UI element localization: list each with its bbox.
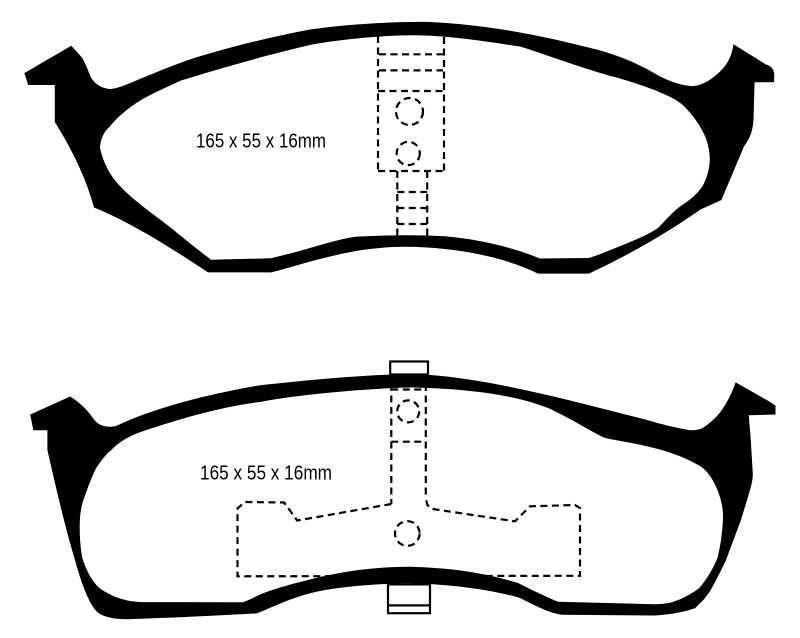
svg-text:165 x 55 x 16mm: 165 x 55 x 16mm xyxy=(196,131,326,153)
svg-text:165 x 55 x 16mm: 165 x 55 x 16mm xyxy=(200,463,332,485)
